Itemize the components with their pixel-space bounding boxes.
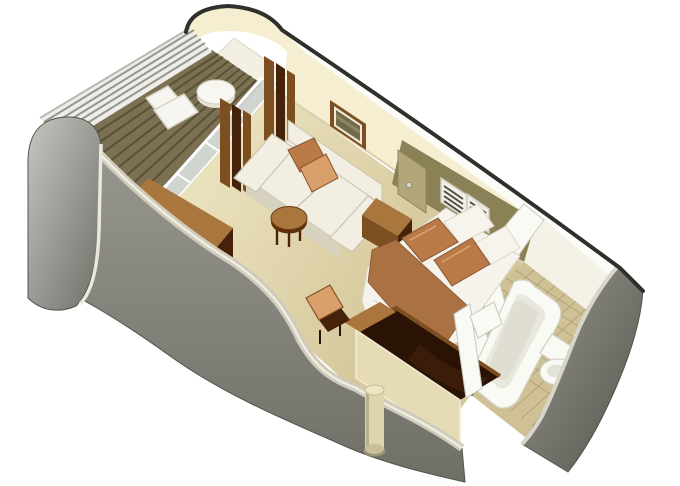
door-knob (406, 182, 411, 187)
structural-column (364, 385, 386, 457)
floor-plan-stage (0, 0, 680, 486)
floor-plan-svg (0, 0, 680, 486)
table-top (271, 207, 307, 230)
hull-fin-wall (28, 117, 101, 310)
